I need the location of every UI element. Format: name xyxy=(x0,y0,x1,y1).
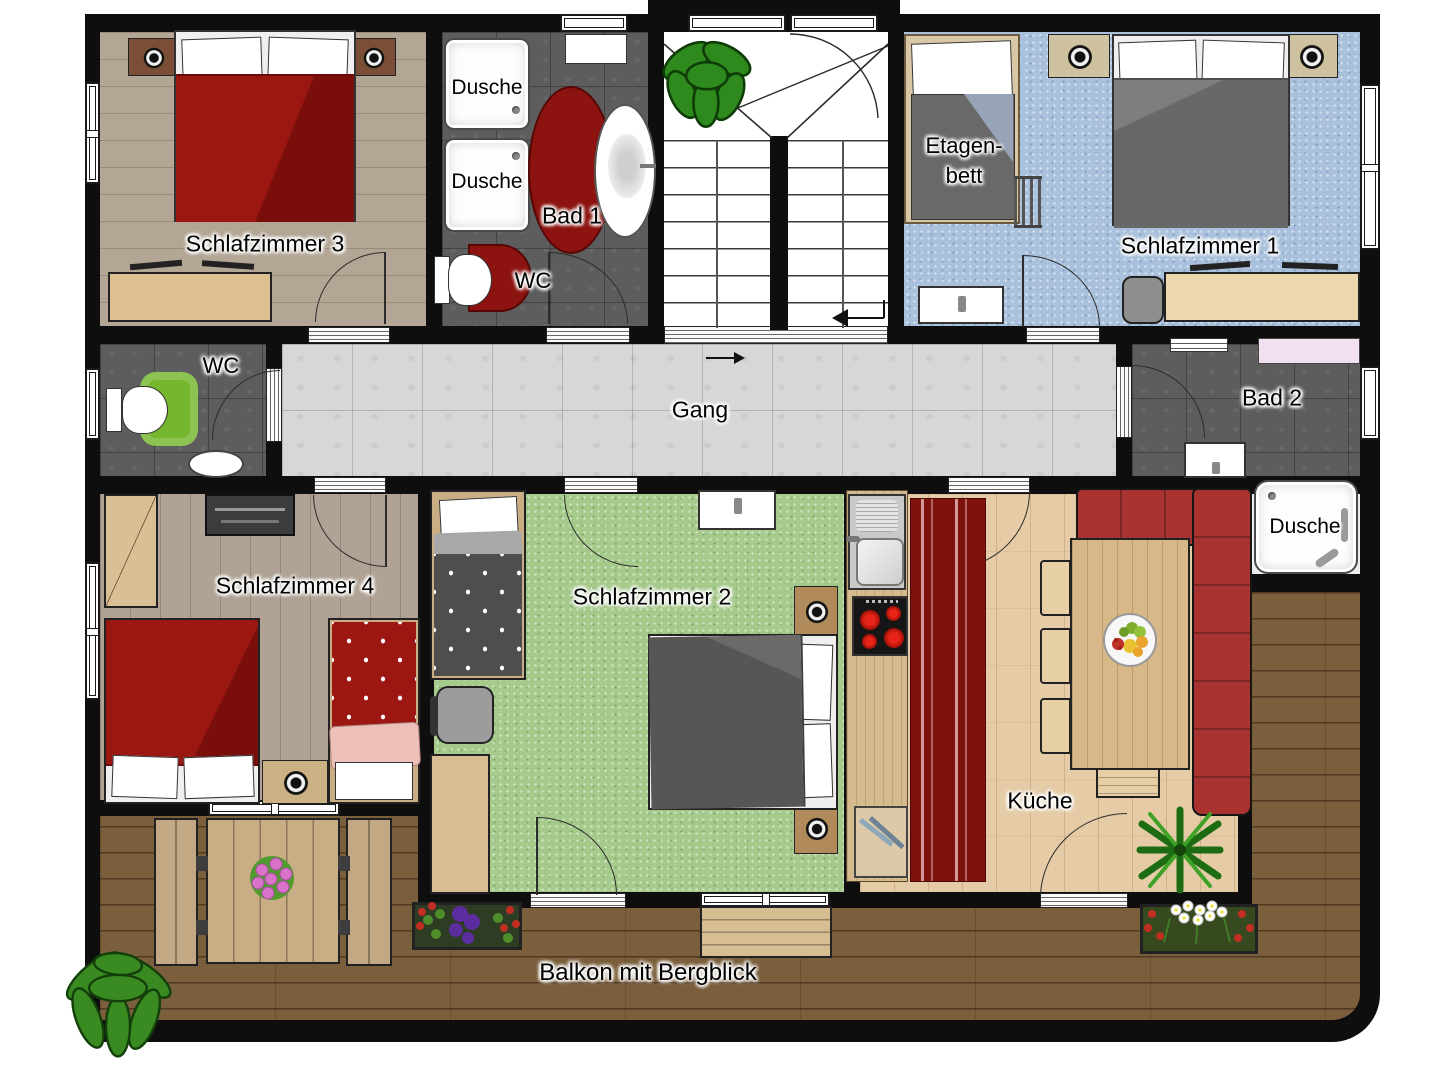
pillow xyxy=(335,762,413,800)
flower-bouquet-icon xyxy=(244,850,300,906)
sink xyxy=(918,286,1004,324)
door-leaf-s4 xyxy=(385,495,387,567)
wardrobe xyxy=(104,494,158,608)
toilet-bowl xyxy=(122,386,168,434)
door-sill-kueche-top xyxy=(948,477,1030,493)
toilet-bowl xyxy=(448,254,492,306)
single-bed xyxy=(430,490,526,680)
single-bed xyxy=(328,618,420,804)
room-label-bad2: Bad 2 xyxy=(1242,385,1302,412)
pillow xyxy=(911,40,1013,101)
flower-box-flowers-icon xyxy=(412,898,522,954)
floor-plan: Schlafzimmer 3 Schlafzimmer 1 Schlafzimm… xyxy=(0,0,1440,1080)
label-etagenbett-line1: Etagen- xyxy=(925,133,1002,159)
duvet-red-dotted xyxy=(332,622,416,734)
duvet-red xyxy=(176,74,354,222)
stairs-arrow-line xyxy=(846,317,884,319)
sideboard xyxy=(205,494,295,536)
door-leaf-s1 xyxy=(1022,255,1024,327)
room-label-kueche: Küche xyxy=(1007,788,1072,815)
desk-chair xyxy=(1122,276,1164,324)
bath-shelf xyxy=(565,34,627,64)
door-sill-bad1 xyxy=(546,327,630,343)
pillow xyxy=(111,755,178,799)
drain-icon xyxy=(512,152,520,160)
window-s1-right xyxy=(1360,84,1380,250)
label-etagenbett-line2: bett xyxy=(946,163,983,189)
nightstand xyxy=(794,804,838,854)
label-dusche-top: Dusche xyxy=(451,76,522,100)
lamp-icon xyxy=(1066,43,1094,71)
toilet-tank xyxy=(106,388,122,432)
window-bad1-top xyxy=(560,14,628,32)
balcony-bench xyxy=(700,906,832,958)
window-bad2-right xyxy=(1360,366,1380,440)
door-sill-s3 xyxy=(308,327,390,343)
room-label-dusche: Dusche xyxy=(1269,515,1340,539)
desk-chair xyxy=(436,686,494,744)
shower-handle-icon xyxy=(1341,508,1348,542)
double-bed xyxy=(648,634,838,810)
door-leaf-s2-balkon xyxy=(536,817,538,895)
nightstand xyxy=(262,760,328,804)
bunk-bed xyxy=(904,34,1020,224)
stove-controls xyxy=(866,600,898,603)
room-label-schlafzimmer2: Schlafzimmer 2 xyxy=(573,584,731,611)
drain-icon xyxy=(1268,492,1276,500)
rug-red-striped xyxy=(910,498,986,882)
desk xyxy=(108,272,272,322)
burner xyxy=(884,628,904,648)
room-label-schlafzimmer3: Schlafzimmer 3 xyxy=(186,231,344,258)
fruit-bowl-icon xyxy=(1102,612,1158,668)
gang-arrow-line xyxy=(706,357,734,359)
ladder-icon xyxy=(1014,176,1042,228)
nightstand xyxy=(128,38,178,76)
window-s3-left xyxy=(85,82,100,184)
stairs-arrow-tail xyxy=(883,300,885,318)
cutting-board xyxy=(854,806,908,878)
nightstand xyxy=(1284,34,1338,78)
room-label-schlafzimmer4: Schlafzimmer 4 xyxy=(216,573,374,600)
sink-basin xyxy=(856,538,904,586)
lamp-icon xyxy=(1298,43,1326,71)
lamp-icon xyxy=(142,46,166,70)
nightstand xyxy=(1048,34,1110,78)
room-label-balkon: Balkon mit Bergblick xyxy=(539,959,756,987)
chair xyxy=(1040,628,1074,684)
door-sill-bad2 xyxy=(1116,366,1132,438)
faucet-icon xyxy=(846,536,860,542)
sink-round xyxy=(188,450,244,478)
drainboard xyxy=(856,500,898,532)
faucet-icon xyxy=(734,498,742,514)
table-connector xyxy=(338,920,350,935)
door-sill-s2-top xyxy=(564,477,638,493)
nightstand xyxy=(350,38,396,76)
burner xyxy=(860,610,880,630)
window-s4-left xyxy=(85,562,100,700)
shower-head-icon xyxy=(1314,547,1340,568)
faucet-icon xyxy=(1212,462,1220,474)
table-connector xyxy=(196,920,208,935)
shelf-line xyxy=(215,508,285,511)
faucet-icon xyxy=(958,296,966,312)
pillow xyxy=(183,755,254,799)
desk xyxy=(1164,272,1360,322)
table-connector xyxy=(338,856,350,871)
table-connector xyxy=(196,856,208,871)
plant-icon xyxy=(656,30,760,134)
shelf-line xyxy=(221,520,279,523)
lamp-icon xyxy=(282,769,310,797)
double-bed xyxy=(1112,34,1290,226)
window-stairs-2 xyxy=(790,14,878,32)
drain-icon xyxy=(512,106,520,114)
chair-back xyxy=(430,696,438,736)
duvet-gray xyxy=(1114,78,1288,228)
chair xyxy=(1040,560,1074,616)
duvet-red xyxy=(106,620,258,766)
room-label-schlafzimmer1: Schlafzimmer 1 xyxy=(1121,233,1279,260)
faucet-icon xyxy=(640,164,656,168)
door-leaf-s3 xyxy=(384,252,386,324)
duvet-dark-dotted xyxy=(434,554,522,676)
lamp-icon xyxy=(804,599,830,625)
stairs-arrow-head xyxy=(832,309,848,327)
room-label-gang: Gang xyxy=(672,397,728,424)
table-bench xyxy=(1096,768,1160,798)
room-label-bad1: Bad 1 xyxy=(542,203,602,230)
kitchen-sink-unit xyxy=(848,494,906,590)
chair xyxy=(1040,698,1074,754)
duvet-dark xyxy=(649,635,806,810)
desk xyxy=(430,754,490,894)
towel-rack xyxy=(1170,338,1228,352)
door-sill-s2-balkon xyxy=(530,893,626,908)
gang-arrow-head xyxy=(734,352,745,364)
bath-cabinet xyxy=(1258,338,1360,364)
burner xyxy=(886,606,901,621)
door-sill-s4 xyxy=(314,477,386,493)
door-sill-s1 xyxy=(1026,327,1100,343)
burner xyxy=(862,634,877,649)
nightstand xyxy=(794,586,838,638)
stove xyxy=(852,596,908,656)
window-wc-left xyxy=(85,368,100,440)
fern-plant-icon xyxy=(1132,802,1228,898)
lamp-icon xyxy=(804,816,830,842)
sink xyxy=(1184,442,1246,478)
sink xyxy=(698,490,776,530)
window-s2-balkon xyxy=(700,892,830,907)
room-label-wc: WC xyxy=(203,353,240,379)
sink-oval xyxy=(594,104,656,238)
label-wc-bad1: WC xyxy=(515,268,552,294)
label-dusche-bottom: Dusche xyxy=(451,170,522,194)
flower-box-flowers-icon xyxy=(1140,898,1258,956)
corner-plant-icon xyxy=(58,940,178,1060)
double-bed xyxy=(104,618,260,804)
picnic-bench xyxy=(346,818,392,966)
double-bed xyxy=(174,30,356,222)
sofa-right xyxy=(1192,488,1252,816)
lamp-icon xyxy=(362,46,386,70)
